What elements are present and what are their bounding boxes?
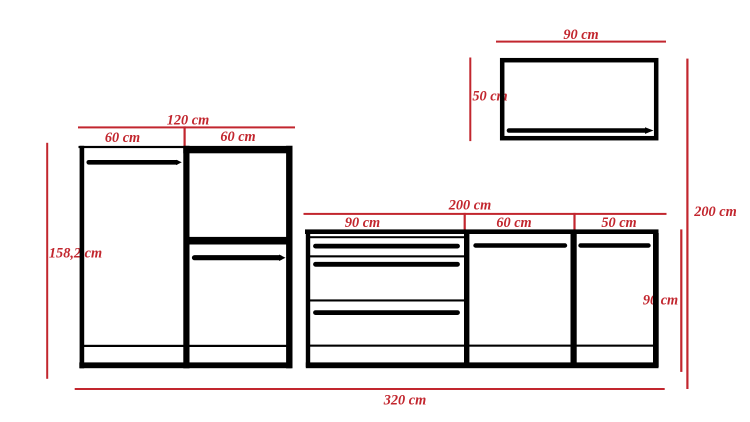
svg-text:200 cm: 200 cm xyxy=(693,204,737,220)
svg-text:60 cm: 60 cm xyxy=(105,130,140,146)
svg-text:320 cm: 320 cm xyxy=(383,392,427,408)
svg-text:90 cm: 90 cm xyxy=(643,293,678,309)
svg-text:200 cm: 200 cm xyxy=(448,198,492,214)
svg-text:60 cm: 60 cm xyxy=(220,129,255,145)
svg-text:50 cm: 50 cm xyxy=(601,215,636,231)
svg-text:90 cm: 90 cm xyxy=(345,215,380,231)
svg-text:60 cm: 60 cm xyxy=(496,215,531,231)
svg-text:158,2 cm: 158,2 cm xyxy=(49,245,102,261)
svg-text:120 cm: 120 cm xyxy=(167,113,210,129)
